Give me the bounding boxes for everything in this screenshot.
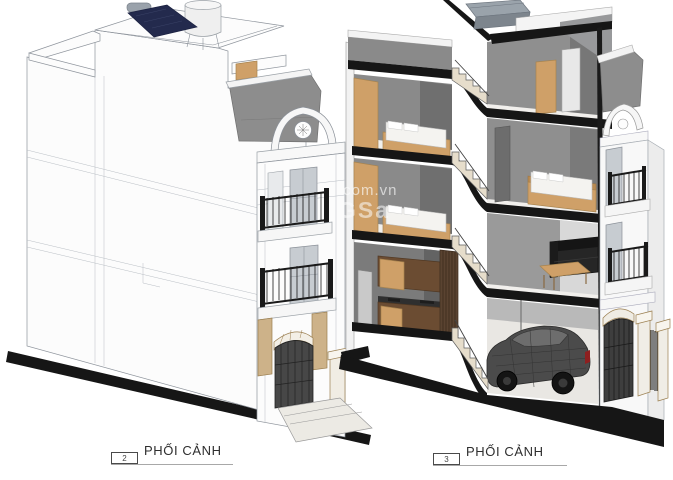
view-tag-2: 2	[111, 452, 138, 464]
wardrobe	[354, 78, 378, 150]
tail-light	[585, 350, 590, 364]
exterior-view	[6, 1, 372, 446]
view-title-left: PHỐI CẢNH	[144, 443, 222, 458]
view-tag-3: 3	[433, 453, 460, 465]
drawing-canvas	[0, 0, 673, 480]
wood-slat-partition	[440, 250, 458, 336]
doorway	[562, 48, 580, 112]
kitchen-back-door	[358, 270, 372, 326]
room-door	[495, 126, 510, 202]
view-tag-number: 3	[444, 455, 448, 464]
architectural-sheet: .com.vn GSa 2 PHỐI CẢNH 3 PHỐI CẢNH	[0, 0, 673, 480]
section-view	[339, 0, 670, 447]
cut-left-wall	[346, 42, 354, 360]
view-tag-number: 2	[122, 454, 126, 463]
view-underline-left	[111, 464, 233, 465]
wardrobe	[354, 162, 378, 234]
view-underline-right	[433, 465, 567, 466]
view-title-right: PHỐI CẢNH	[466, 444, 544, 459]
wardrobe	[536, 60, 556, 114]
section-facade	[597, 45, 670, 428]
